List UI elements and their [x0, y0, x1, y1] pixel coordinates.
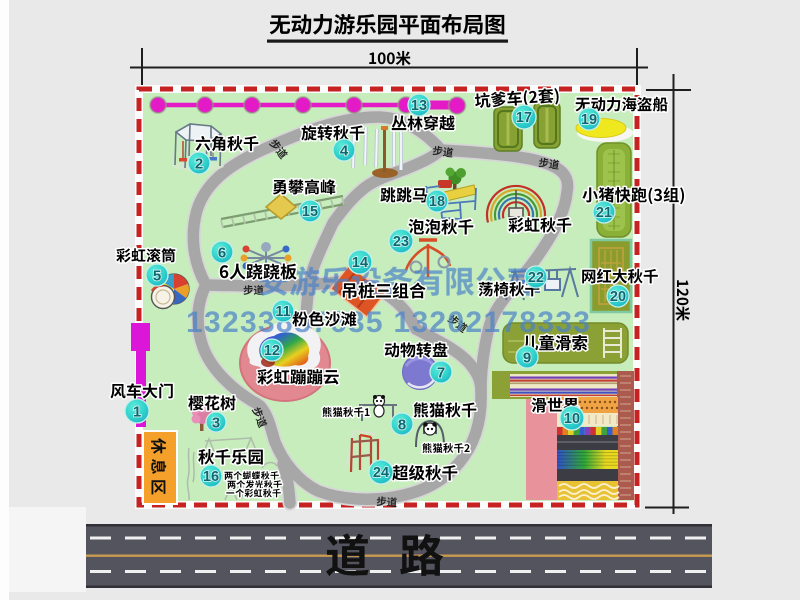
svg-text:12: 12: [264, 343, 280, 359]
svg-text:21: 21: [596, 205, 612, 221]
svg-text:11: 11: [275, 304, 290, 320]
svg-text:7: 7: [437, 364, 445, 381]
svg-text:15: 15: [302, 204, 318, 220]
svg-text:2: 2: [195, 155, 203, 172]
svg-text:3: 3: [212, 414, 220, 431]
svg-text:1: 1: [133, 403, 141, 420]
svg-text:13233887635 13202178333: 13233887635 13202178333: [186, 306, 591, 339]
svg-text:18: 18: [429, 194, 445, 210]
svg-text:5: 5: [153, 267, 161, 284]
svg-text:19: 19: [581, 112, 597, 128]
svg-text:17: 17: [516, 110, 532, 126]
svg-text:8: 8: [398, 416, 406, 433]
svg-text:13: 13: [411, 98, 427, 114]
svg-text:14: 14: [352, 255, 368, 271]
svg-text:24: 24: [373, 465, 389, 481]
svg-text:22: 22: [528, 270, 544, 286]
svg-text:20: 20: [610, 289, 626, 305]
svg-text:23: 23: [393, 234, 409, 250]
svg-text:10: 10: [564, 411, 580, 427]
svg-text:9: 9: [523, 349, 531, 366]
svg-text:4: 4: [340, 142, 349, 159]
svg-text:6: 6: [218, 244, 226, 261]
svg-text:16: 16: [203, 469, 219, 485]
